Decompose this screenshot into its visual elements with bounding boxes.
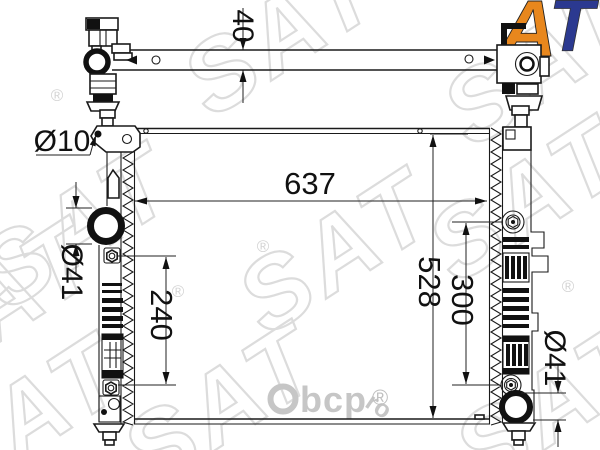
inlet-pipe <box>91 211 122 242</box>
shop-name: bcp <box>300 379 367 420</box>
registered-mark: ® <box>562 277 575 296</box>
pipe-ring-right <box>521 58 534 71</box>
filler-neck <box>102 118 113 126</box>
bar-hole-left <box>152 56 160 64</box>
dim-label-right-outlet: Ø41 <box>538 330 571 387</box>
dim-label-left-inlet: Ø41 <box>55 244 88 301</box>
dimension-o10: Ø10 <box>34 125 96 158</box>
drain-plug <box>105 440 114 445</box>
outlet-pipe <box>502 393 530 421</box>
dim-label-left-pin-spacing: 240 <box>144 289 179 341</box>
dim-label-filler-neck: Ø10 <box>34 125 91 158</box>
dim-label-core-height: 528 <box>412 256 447 308</box>
registered-mark: ® <box>257 237 270 256</box>
filler-neck-right <box>515 115 527 127</box>
top-view-left-fitting <box>86 18 137 111</box>
technical-drawing: SAT SAT SAT SAT SAT SAT SAT SAT SAT ® ® … <box>0 0 600 450</box>
dim-label-core-width: 637 <box>284 166 336 201</box>
registered-mark: ® <box>51 86 64 105</box>
watermark-text: SAT <box>163 0 402 138</box>
filler-cap <box>100 110 115 118</box>
radiator-drawing-page: SAT SAT SAT SAT SAT SAT SAT SAT SAT ® ® … <box>0 0 600 450</box>
shop-registered-mark: ® <box>372 385 388 410</box>
drain-plug-right <box>514 440 523 445</box>
pipe-ring-left <box>86 51 108 73</box>
dim-label-top-height: 40 <box>226 9 259 42</box>
right-tank-grid <box>503 336 529 374</box>
filler-cap-right <box>512 106 529 115</box>
dim-label-right-pin-spacing: 300 <box>445 274 480 326</box>
